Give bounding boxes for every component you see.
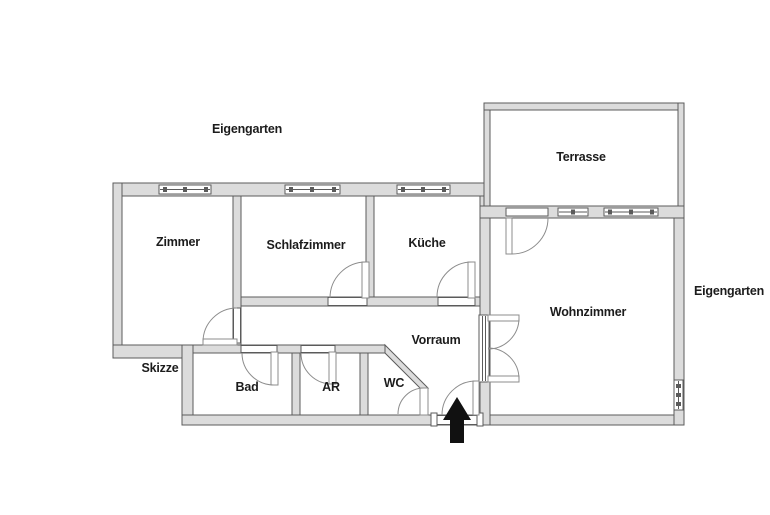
wall-ar-wc-divider (360, 353, 368, 415)
room-label-bad: Bad (235, 380, 258, 394)
door-ar (301, 346, 336, 385)
wall-center-vertical (480, 196, 490, 425)
terrace-wall-right (678, 103, 684, 218)
room-label-schlafzimmer: Schlafzimmer (267, 238, 346, 252)
entrance-arrow-icon (443, 397, 471, 443)
wall-step-left (182, 345, 193, 425)
room-label-kueche: Küche (408, 236, 445, 250)
window-wohnzimmer-right (674, 380, 683, 410)
door-terrasse (506, 208, 548, 254)
wall-left (113, 183, 122, 358)
wall-bad-ar-divider (292, 353, 300, 415)
room-label-wohnzimmer: Wohnzimmer (550, 305, 626, 319)
terrace-wall-left (484, 103, 490, 213)
door-schlafzimmer (328, 262, 369, 306)
window-schlafzimmer (285, 185, 340, 194)
floorplan-drawing (0, 0, 770, 515)
floorplan-sketch: Eigengarten Eigengarten Skizze Terrasse … (0, 0, 770, 515)
room-label-ar: AR (322, 380, 340, 394)
garden-label-right: Eigengarten (694, 284, 764, 298)
door-wc (398, 388, 428, 415)
room-label-zimmer: Zimmer (156, 235, 200, 249)
window-wohnzimmer-top (604, 208, 658, 216)
terrace-wall-top (484, 103, 684, 110)
double-door-wohnzimmer (479, 315, 519, 382)
door-zimmer (203, 308, 241, 345)
window-kueche (397, 185, 450, 194)
room-label-vorraum: Vorraum (411, 333, 460, 347)
wall-bad-ar-top (193, 345, 385, 353)
garden-label-top: Eigengarten (212, 122, 282, 136)
room-label-terrasse: Terrasse (556, 150, 606, 164)
window-zimmer (159, 185, 211, 194)
room-label-wc: WC (384, 376, 404, 390)
door-kueche (437, 262, 475, 306)
window-wohnzimmer-left (558, 208, 588, 216)
sketch-label: Skizze (141, 361, 178, 375)
wall-zimmer-bottom (113, 345, 193, 358)
